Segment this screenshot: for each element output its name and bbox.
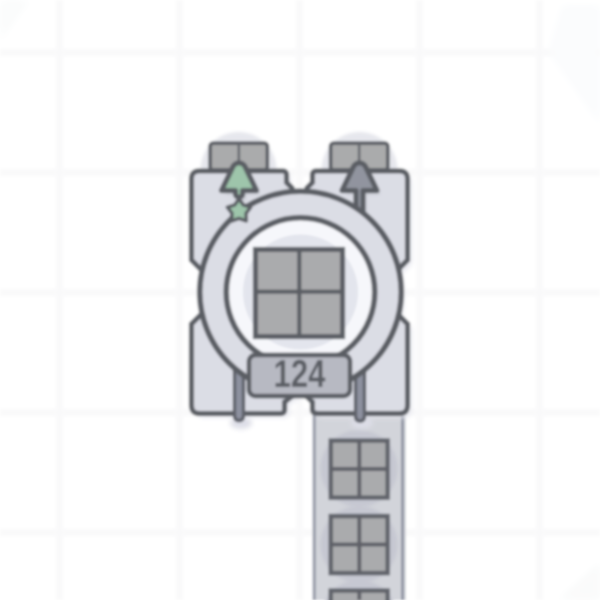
svg-text:124: 124 (274, 353, 326, 396)
